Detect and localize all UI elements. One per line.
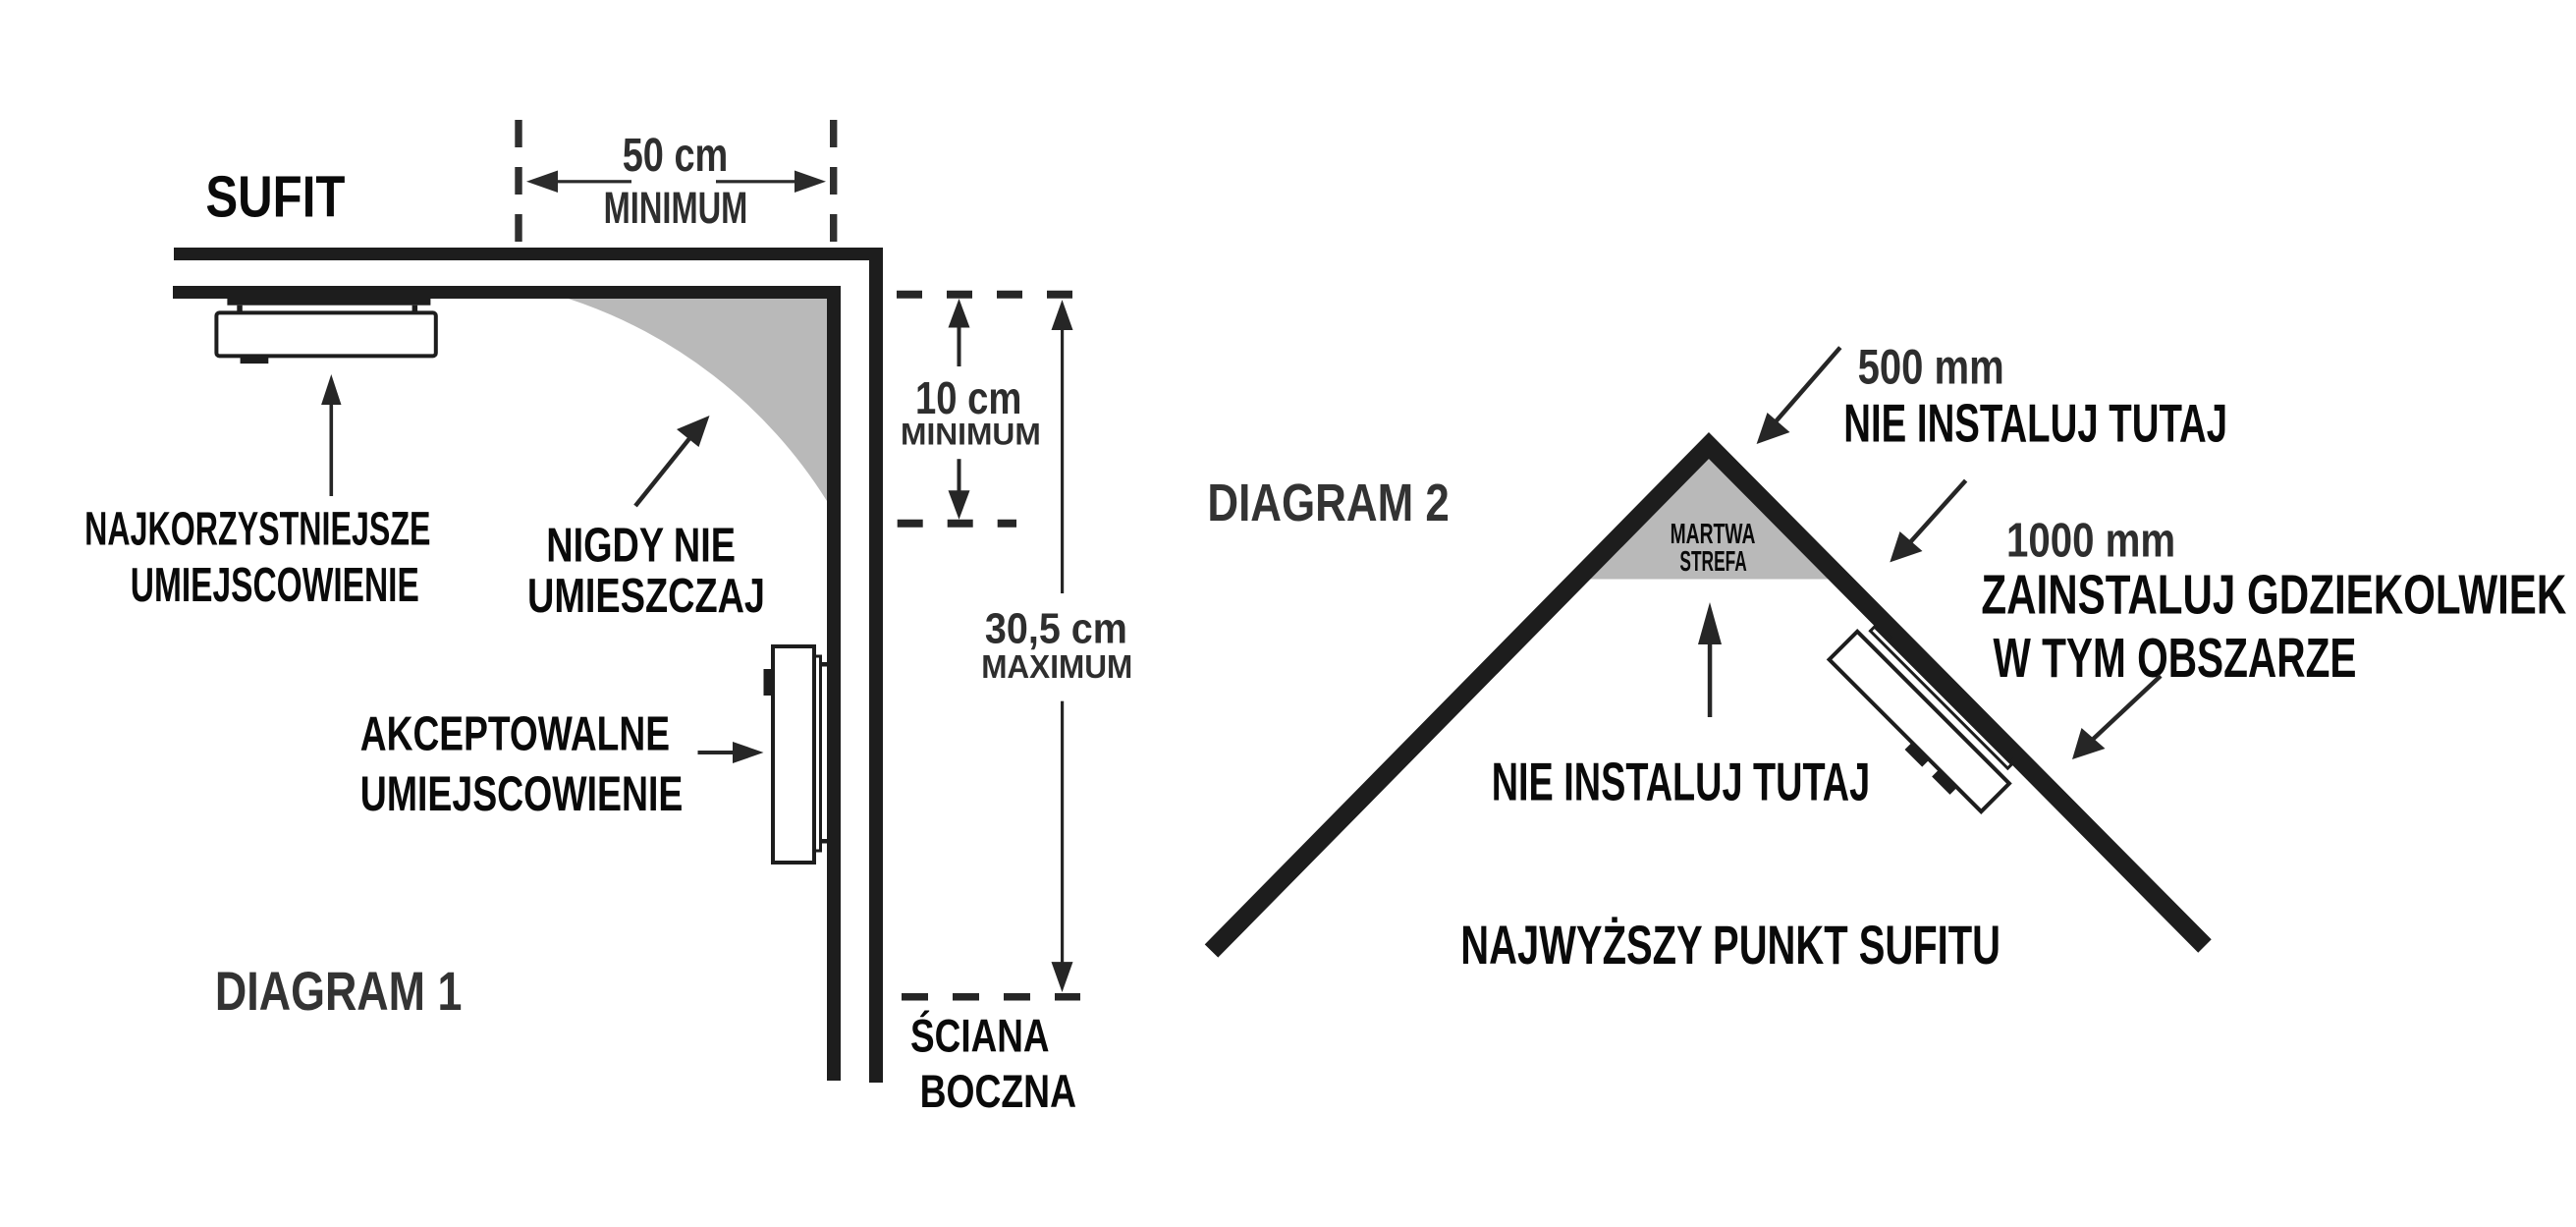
svg-text:NAJKORZYSTNIEJSZE: NAJKORZYSTNIEJSZE bbox=[84, 504, 430, 556]
svg-text:500 mm: 500 mm bbox=[1858, 339, 2004, 394]
svg-text:NAJWYŻSZY PUNKT SUFITU: NAJWYŻSZY PUNKT SUFITU bbox=[1460, 915, 2001, 976]
svg-text:30,5 cm: 30,5 cm bbox=[985, 606, 1127, 653]
svg-text:AKCEPTOWALNE: AKCEPTOWALNE bbox=[360, 706, 670, 760]
svg-text:DIAGRAM 1: DIAGRAM 1 bbox=[215, 960, 463, 1022]
svg-text:UMIEJSCOWIENIE: UMIEJSCOWIENIE bbox=[360, 765, 684, 821]
svg-text:10 cm: 10 cm bbox=[915, 372, 1021, 423]
svg-text:NIE INSTALUJ TUTAJ: NIE INSTALUJ TUTAJ bbox=[1492, 752, 1871, 812]
svg-text:SUFIT: SUFIT bbox=[205, 164, 345, 229]
svg-text:UMIEJSCOWIENIE: UMIEJSCOWIENIE bbox=[131, 558, 419, 612]
svg-text:NIGDY NIE: NIGDY NIE bbox=[546, 519, 736, 573]
svg-text:MINIMUM: MINIMUM bbox=[604, 183, 748, 233]
svg-text:DIAGRAM 2: DIAGRAM 2 bbox=[1207, 474, 1449, 532]
svg-text:ŚCIANA: ŚCIANA bbox=[910, 1009, 1050, 1061]
svg-text:STREFA: STREFA bbox=[1679, 546, 1746, 578]
svg-text:W TYM OBSZARZE: W TYM OBSZARZE bbox=[1994, 627, 2357, 689]
svg-text:ZAINSTALUJ GDZIEKOLWIEK: ZAINSTALUJ GDZIEKOLWIEK bbox=[1981, 563, 2566, 625]
svg-text:NIE INSTALUJ TUTAJ: NIE INSTALUJ TUTAJ bbox=[1843, 393, 2227, 454]
svg-text:MAXIMUM: MAXIMUM bbox=[981, 649, 1132, 686]
svg-text:BOCZNA: BOCZNA bbox=[920, 1066, 1076, 1118]
svg-text:MINIMUM: MINIMUM bbox=[901, 417, 1041, 451]
svg-text:50 cm: 50 cm bbox=[623, 130, 729, 182]
svg-text:1000 mm: 1000 mm bbox=[2006, 515, 2175, 568]
svg-text:UMIESZCZAJ: UMIESZCZAJ bbox=[527, 569, 765, 623]
